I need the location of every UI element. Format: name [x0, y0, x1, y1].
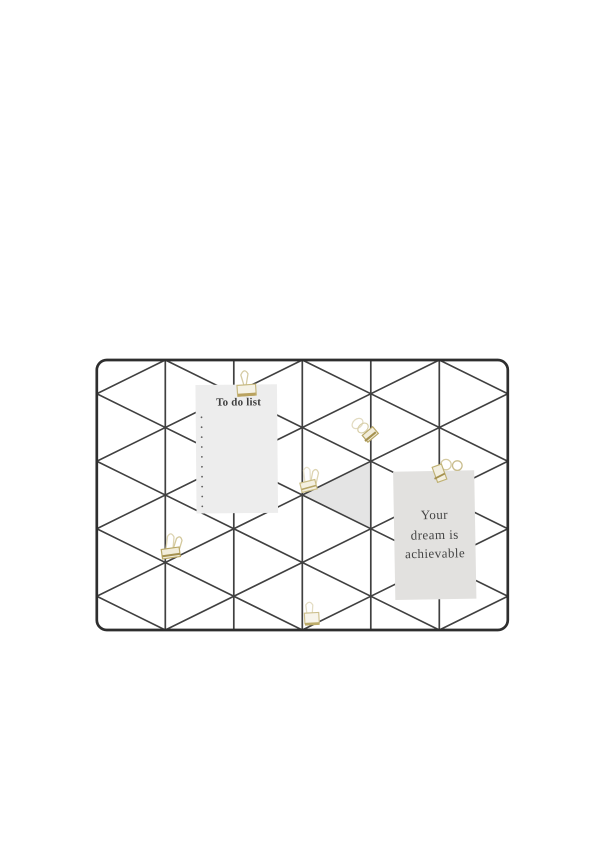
- svg-text:To do list: To do list: [216, 396, 261, 408]
- svg-text:achievable: achievable: [405, 545, 465, 561]
- svg-text:dream is: dream is: [411, 527, 459, 543]
- svg-text:Your: Your: [421, 507, 449, 522]
